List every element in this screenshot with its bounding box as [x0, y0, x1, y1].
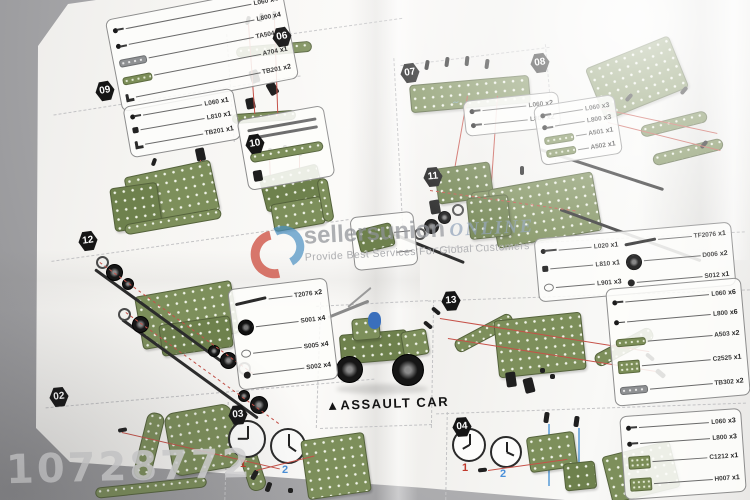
- part-length-line: [140, 118, 205, 130]
- part-length-line: [640, 438, 710, 444]
- part-row: S002x4: [243, 361, 331, 379]
- clock-icon-1: [228, 420, 266, 458]
- hub-icon: [243, 371, 251, 379]
- photo-of-instruction-sheet: ~⁢⁢⁢⁢⁢⁢⁢⁢: [0, 0, 750, 500]
- part-code: TB302: [714, 378, 734, 387]
- part-row: L060x3: [626, 417, 736, 432]
- part-row: H007x1: [630, 471, 741, 492]
- part-length-line: [482, 105, 526, 111]
- strip-green-icon: [546, 146, 577, 159]
- minute-hand: [247, 426, 249, 439]
- part-code: C2525: [712, 354, 732, 363]
- part-qty: x1: [730, 452, 738, 460]
- part-length-line: [642, 359, 711, 366]
- screw-icon: [130, 113, 142, 120]
- part-qty: x1: [718, 230, 726, 238]
- part-qty: x2: [314, 289, 323, 297]
- screw-icon: [469, 108, 480, 114]
- part-length-line: [553, 109, 583, 115]
- part-code: L060: [711, 417, 726, 425]
- hour-hand: [238, 438, 248, 440]
- screw-icon: [614, 320, 625, 326]
- part-qty: x1: [225, 125, 234, 133]
- strip-green-icon: [616, 337, 647, 348]
- part-code: A502: [590, 142, 606, 151]
- part-length-line: [648, 335, 712, 342]
- part-row: TF2076x1: [624, 230, 726, 246]
- part-code: L810: [595, 260, 610, 268]
- part-qty: x2: [731, 330, 739, 338]
- part-qty: x2: [283, 63, 292, 71]
- part-qty: x6: [728, 288, 736, 296]
- part-qty: x1: [605, 127, 614, 135]
- green-bracket: [563, 460, 598, 491]
- part-code: L800: [712, 433, 727, 441]
- part-code: L060: [204, 98, 220, 107]
- part-code: L800: [587, 115, 603, 124]
- ring-icon: [544, 283, 555, 292]
- rod-icon: [235, 296, 267, 306]
- part-length-line: [652, 457, 707, 462]
- part-length-line: [253, 368, 305, 375]
- part-row: L800x6: [614, 309, 738, 327]
- part-length-line: [654, 479, 713, 484]
- nut-icon: [132, 127, 139, 134]
- parts-box-right: L060x6L800x6A503x2C2525x1TB302x2: [605, 277, 750, 406]
- part-row: L810x1: [542, 259, 620, 273]
- part-qty: x1: [733, 353, 741, 361]
- part-qty: x4: [323, 361, 332, 369]
- parts-box-bottom-right: L060x3L800x3C1212x1H007x1: [619, 408, 747, 500]
- part-code: L800: [713, 310, 728, 318]
- front-wheel: [392, 354, 424, 386]
- clock-step-number: 2: [282, 464, 288, 476]
- part-length-line: [556, 283, 595, 287]
- part-length-line: [644, 256, 701, 262]
- part-length-line: [484, 119, 528, 125]
- part-length-line: [253, 346, 302, 353]
- screw-icon: [612, 299, 623, 305]
- rear-wheel: [336, 356, 363, 383]
- part-qty: x1: [607, 140, 616, 148]
- part-length-line: [555, 121, 585, 127]
- part-qty: x4: [273, 12, 282, 20]
- part-qty: x3: [601, 102, 610, 110]
- part-row: L020x1: [540, 241, 618, 255]
- part-length-line: [256, 321, 299, 327]
- part-qty: x1: [612, 259, 620, 267]
- part-code: A501: [588, 128, 604, 137]
- plate-green-icon: [630, 477, 653, 492]
- part-code: S002: [306, 363, 322, 372]
- nut: [288, 488, 293, 493]
- part-length-line: [639, 422, 709, 428]
- part-code: L020: [594, 242, 609, 250]
- rod-icon: [624, 237, 656, 246]
- blue-script-note: ~⁢⁢⁢⁢⁢⁢⁢⁢: [451, 98, 460, 109]
- part-code: D006: [702, 251, 718, 259]
- green-strip: [95, 476, 208, 499]
- strip-green-icon: [544, 133, 575, 146]
- part-row: L060x6: [612, 288, 736, 306]
- hub-icon: [627, 279, 635, 287]
- part-row: L800x3: [627, 433, 737, 448]
- part-qty: x6: [730, 309, 738, 317]
- part-line: [394, 230, 410, 233]
- part-row: TB302x2: [620, 377, 744, 396]
- hub: [424, 219, 439, 234]
- hour-hand: [288, 445, 296, 451]
- part-code: A704: [262, 48, 279, 58]
- part-code: H007: [714, 474, 730, 482]
- screw: [520, 166, 524, 175]
- nut-icon: [542, 266, 549, 273]
- part-qty: x2: [720, 250, 728, 258]
- screw-icon: [627, 441, 638, 447]
- part-qty: x4: [317, 314, 326, 322]
- hour-hand: [506, 451, 514, 456]
- nut: [550, 374, 555, 379]
- part-length-line: [576, 134, 587, 137]
- part-qty: x4: [270, 0, 279, 4]
- hub: [438, 211, 451, 224]
- clock-icon-2: [490, 436, 522, 468]
- part-length-line: [145, 133, 203, 144]
- strip-green-icon: [122, 72, 153, 86]
- part-code: L901: [597, 279, 612, 287]
- part-qty: x4: [320, 340, 329, 348]
- hub: [208, 345, 220, 357]
- part-code: A503: [714, 330, 730, 338]
- part-code: L800: [256, 14, 272, 24]
- ring-icon: [241, 349, 252, 358]
- parts-box-step-08: L060x3L800x3A501x1A502x1: [533, 94, 623, 166]
- bracket: [253, 170, 264, 182]
- part-qty: x1: [279, 46, 288, 54]
- screw-icon: [540, 112, 552, 119]
- car-shadow: [336, 384, 428, 394]
- part-length-line: [625, 294, 709, 302]
- turret-part: [355, 222, 396, 254]
- part-row: S005x4: [241, 340, 329, 359]
- part-code: L060: [711, 289, 726, 297]
- part-length-line: [627, 314, 711, 322]
- part-row: A503x2: [616, 329, 740, 348]
- wheel-icon: [237, 319, 255, 337]
- part-qty: x3: [614, 278, 622, 286]
- screw-icon: [112, 26, 124, 33]
- part-row: C2525x1: [617, 350, 742, 374]
- part-qty: x1: [732, 474, 740, 482]
- gunner-figure: [368, 312, 381, 329]
- part-length-line: [143, 104, 203, 115]
- clock-step-number: 2: [500, 468, 506, 480]
- plate-green-icon: [617, 359, 640, 374]
- screw-icon: [626, 425, 637, 431]
- wheel-icon: [625, 253, 642, 270]
- part-length-line: [658, 236, 692, 240]
- parts-box-turret-unlabeled: [349, 211, 418, 271]
- part-code: C1212: [709, 452, 729, 460]
- part-qty: x1: [721, 270, 729, 278]
- bracket-icon: [135, 140, 144, 149]
- strip-gray-icon: [620, 385, 649, 395]
- part-code: L060: [585, 103, 601, 112]
- part-length-line: [269, 296, 293, 300]
- part-qty: x3: [728, 417, 736, 425]
- part-row: T2076x2: [234, 289, 322, 307]
- plate-green-icon: [628, 455, 651, 470]
- part-code: T2076: [294, 290, 313, 299]
- part-qty: x3: [603, 114, 612, 122]
- part-code: L060: [253, 0, 269, 7]
- part-row: D006x2: [625, 246, 728, 271]
- part-qty: x2: [736, 377, 744, 385]
- nut: [540, 368, 545, 373]
- part-length-line: [650, 383, 713, 389]
- part-qty: x1: [220, 96, 229, 104]
- part-code: S005: [303, 341, 319, 350]
- part-length-line: [550, 265, 593, 270]
- part-row: C1212x1: [628, 449, 739, 470]
- part-code: TF2076: [694, 231, 717, 240]
- screw-long-icon: [540, 247, 556, 253]
- part-code: L810: [206, 112, 222, 121]
- triangle-marker: ▲: [326, 398, 341, 413]
- bracket-icon: [125, 93, 134, 102]
- screw-icon: [116, 43, 128, 50]
- screw-icon: [542, 124, 554, 131]
- part-length-line: [559, 246, 592, 250]
- part-row: S001x4: [237, 310, 326, 337]
- part-qty: x3: [729, 433, 737, 441]
- part-code: S001: [300, 315, 316, 324]
- part-qty: x1: [610, 241, 618, 249]
- part-line: [396, 250, 412, 253]
- clock-step-number: 1: [240, 458, 246, 470]
- part-qty: x1: [223, 110, 232, 118]
- green-plate: [300, 432, 372, 500]
- hour-hand: [462, 444, 470, 449]
- part-length-line: [578, 147, 589, 150]
- part-code: TB201: [204, 127, 224, 137]
- bracket: [505, 371, 517, 387]
- strip-gray-icon: [119, 55, 148, 68]
- clock-step-number: 1: [462, 462, 468, 474]
- part-code: TB201: [262, 65, 282, 76]
- screw-icon: [471, 122, 482, 128]
- part-code: TA504: [255, 30, 275, 41]
- parts-box-step-12: T2076x2S001x4S005x4S002x4: [227, 277, 339, 390]
- washer: [452, 204, 464, 216]
